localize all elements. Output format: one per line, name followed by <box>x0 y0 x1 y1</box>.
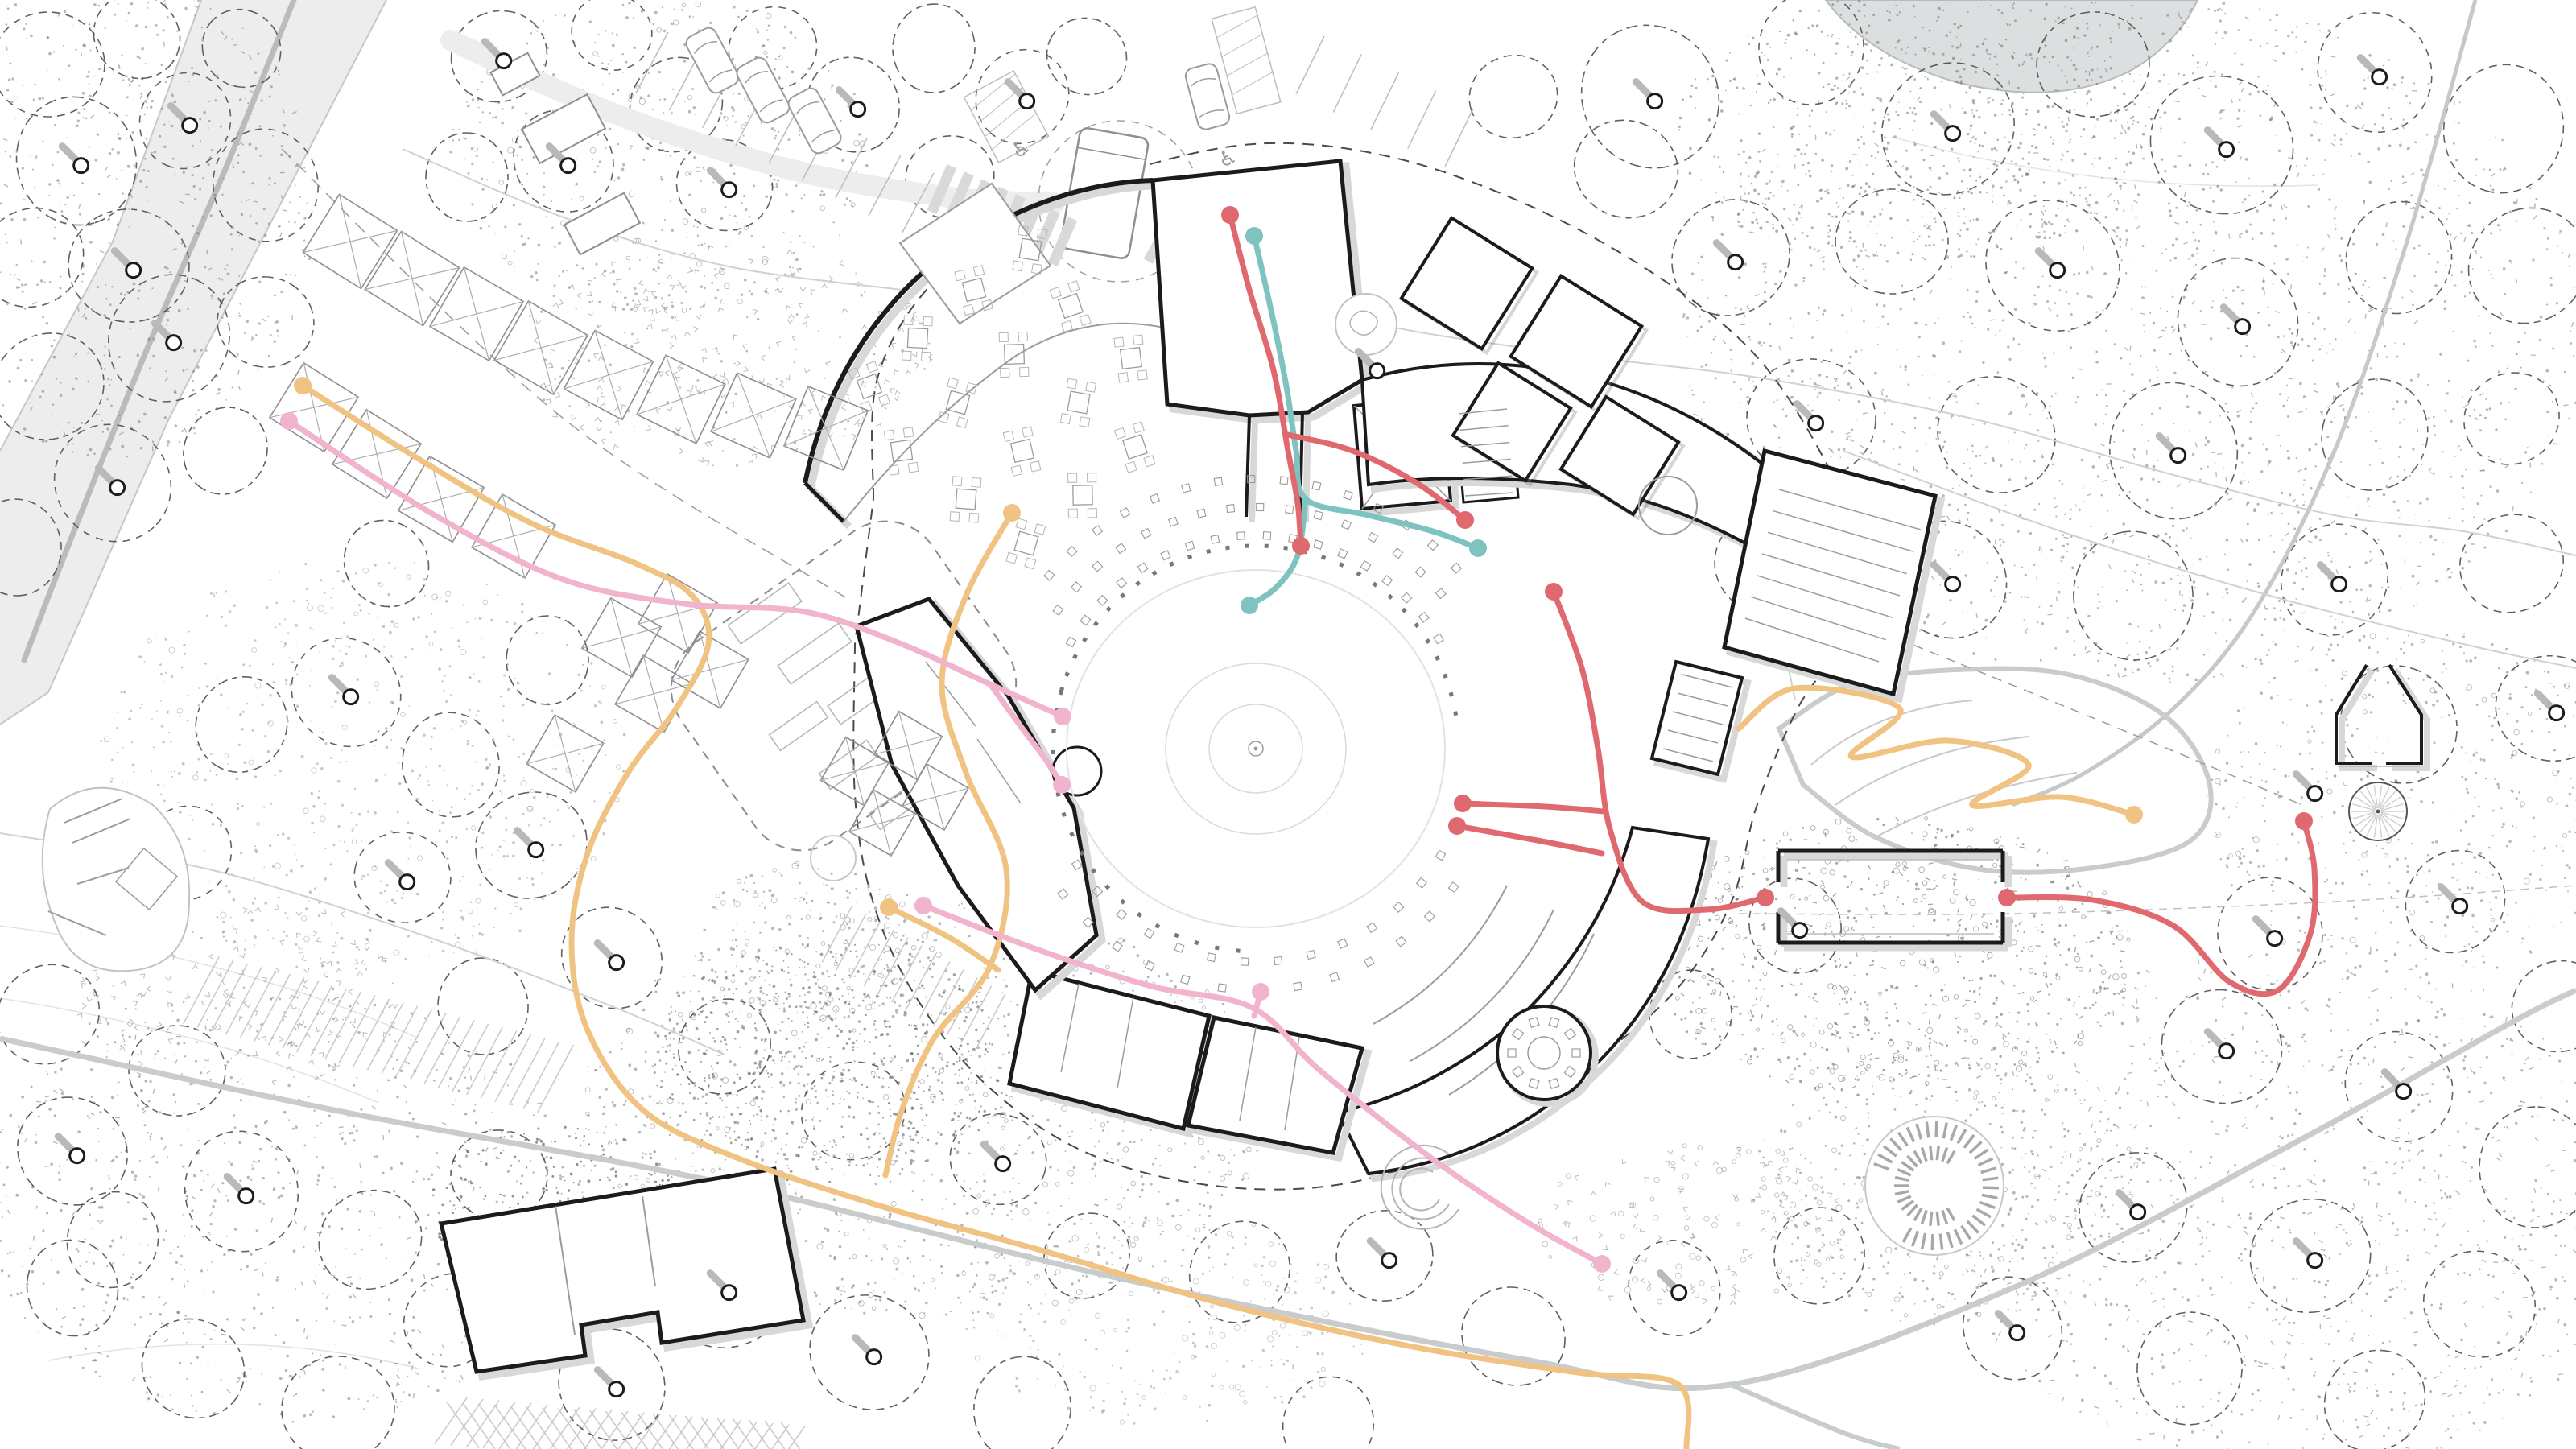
labyrinth-stone <box>1936 1121 1937 1137</box>
labyrinth-stone <box>1937 1146 1938 1160</box>
route-red-stub-a-endpoint <box>1454 795 1472 812</box>
fountain-circle <box>1335 294 1397 355</box>
labyrinth <box>1865 1117 2004 1255</box>
colonnade-column <box>1051 750 1055 754</box>
colonnade-column <box>1245 544 1249 548</box>
route-pink-south-endpoint <box>914 897 932 914</box>
route-yellow-west-loop-endpoint <box>294 377 312 394</box>
labyrinth-stone <box>1932 1234 1933 1250</box>
colonnade-column <box>1283 546 1288 551</box>
route-teal-north-endpoint <box>1469 539 1487 557</box>
colonnade-column <box>1236 948 1240 952</box>
route-red-south-east-endpoint <box>1757 889 1774 906</box>
north-wing <box>1153 161 1362 415</box>
colonnade-column <box>1215 945 1220 950</box>
route-teal-branch-endpoint <box>1241 597 1258 614</box>
colonnade-column <box>1453 711 1458 716</box>
site-plan-drawing: ♿♿ <box>0 0 2576 1449</box>
labyrinth-stone <box>1926 1122 1928 1138</box>
colonnade-column <box>1051 729 1055 733</box>
labyrinth-stone <box>1930 1146 1932 1160</box>
round-room <box>1497 1006 1591 1100</box>
courtyard-center-dot <box>1254 747 1258 751</box>
route-yellow-ramp-endpoint <box>2125 806 2143 824</box>
labyrinth-stone <box>1983 1178 1999 1179</box>
labyrinth-stone <box>1983 1187 1999 1188</box>
route-red-north-endpoint <box>1292 537 1310 555</box>
colonnade-column <box>1225 546 1230 551</box>
site-plan-canvas: ♿♿ <box>0 0 2576 1449</box>
route-red-stub-b-endpoint <box>1448 817 1466 835</box>
route-yellow-stub-endpoint <box>880 898 898 916</box>
route-red-south-east-endpoint <box>1545 583 1563 601</box>
labyrinth-stone <box>1937 1212 1938 1226</box>
route-teal-north-endpoint <box>1245 227 1263 245</box>
route-red-pavilion-east-endpoint <box>1998 889 2016 906</box>
labyrinth-stone <box>1940 1234 1942 1250</box>
fire-circle <box>2349 782 2407 840</box>
route-yellow-southwest-entry-endpoint <box>1003 504 1021 522</box>
route-pink-west-endpoint <box>280 412 298 430</box>
route-pink-south-stub-endpoint <box>1252 983 1269 1001</box>
colonnade-column <box>1265 544 1269 548</box>
route-red-pavilion-east-endpoint <box>2295 812 2313 830</box>
route-red-east-branch-endpoint <box>1456 511 1474 529</box>
labyrinth-circle <box>1865 1117 2004 1255</box>
fire-circle-center <box>2376 810 2380 814</box>
route-pink-west-fork-endpoint <box>1053 776 1071 794</box>
labyrinth-stone <box>1930 1212 1932 1226</box>
route-pink-west-endpoint <box>1054 708 1071 725</box>
route-pink-south-endpoint <box>1593 1255 1611 1273</box>
route-red-north-endpoint <box>1221 206 1239 224</box>
